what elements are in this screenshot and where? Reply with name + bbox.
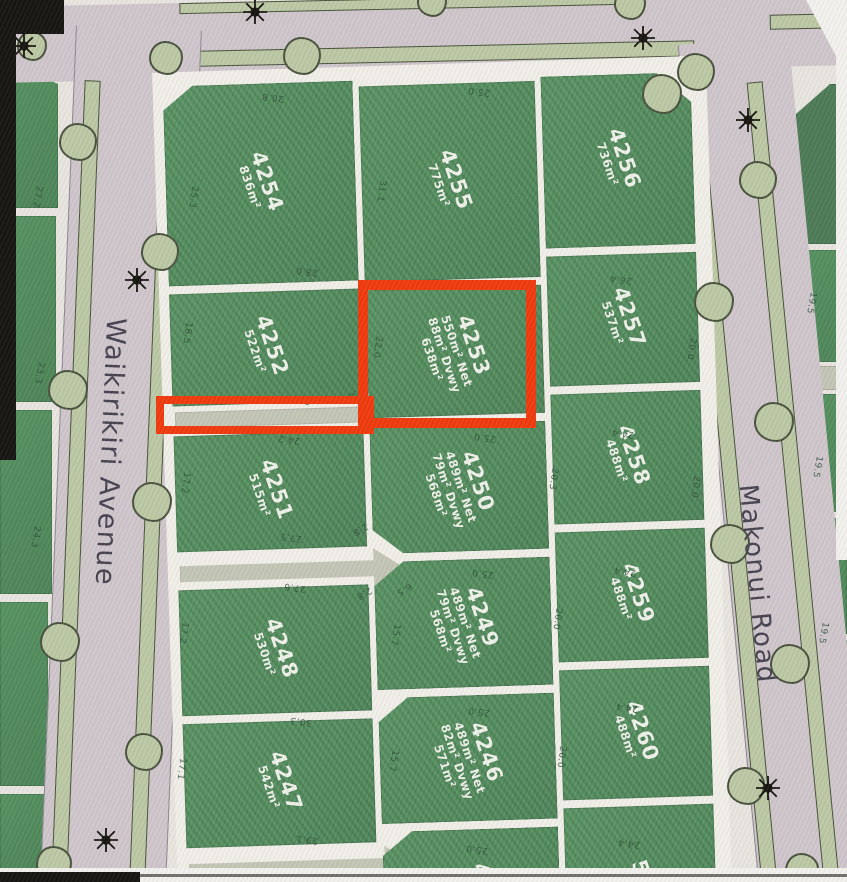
lot-4249: 4249489m² Net79m² Dvwy568m² bbox=[374, 557, 554, 690]
tree-icon bbox=[283, 37, 321, 75]
photo-edge-top-left bbox=[0, 0, 64, 34]
street-light-icon bbox=[243, 0, 267, 24]
lot-4258: 4258488m² bbox=[550, 390, 704, 525]
lot-4250: 4250489m² Net79m² Dvwy568m² bbox=[369, 421, 549, 554]
tree-icon bbox=[754, 402, 794, 442]
map-photo: 4254836m²4252522m²4251515m²4248530m²4247… bbox=[0, 0, 847, 882]
lot-4252: 4252522m² bbox=[169, 289, 362, 407]
tree-icon bbox=[642, 74, 682, 114]
lot-4247: 4247542m² bbox=[183, 718, 377, 848]
street-light-icon bbox=[94, 828, 118, 852]
tree-icon bbox=[149, 41, 183, 75]
lot-label: 4251515m² bbox=[243, 456, 297, 527]
lot-label: 4252522m² bbox=[239, 312, 293, 383]
lot-4254: 4254836m² bbox=[163, 81, 359, 287]
lot-4257: 4257537m² bbox=[546, 252, 700, 387]
tree-icon bbox=[48, 370, 88, 410]
lot-4248: 4248530m² bbox=[178, 584, 372, 716]
lot-label: 4257537m² bbox=[596, 284, 650, 355]
street-light-icon bbox=[736, 108, 760, 132]
lot-label: 4254836m² bbox=[234, 148, 288, 219]
photo-edge-left-strip bbox=[0, 30, 16, 460]
tree-icon bbox=[40, 622, 80, 662]
photo-edge-right-strip bbox=[836, 0, 847, 560]
street-light-icon bbox=[631, 26, 655, 50]
tree-icon bbox=[677, 53, 715, 91]
tree-icon bbox=[59, 123, 97, 161]
lot-label: 4255775m² bbox=[423, 146, 477, 217]
lot-4251: 4251515m² bbox=[174, 430, 368, 552]
partial-lot-west bbox=[0, 602, 48, 786]
tree-icon bbox=[141, 233, 179, 271]
tree-icon bbox=[739, 161, 777, 199]
tree-icon bbox=[694, 282, 734, 322]
lot-label: 4248530m² bbox=[248, 615, 302, 686]
lot-label: 4247542m² bbox=[253, 748, 307, 819]
lot-label: 4250489m² Net79m² Dvwy568m² bbox=[417, 440, 501, 535]
lot-label: 4256736m² bbox=[591, 125, 645, 196]
lot-4259: 4259488m² bbox=[555, 528, 709, 663]
street-light-icon bbox=[756, 776, 780, 800]
street-light-icon bbox=[125, 268, 149, 292]
lot-block: 4254836m²4252522m²4251515m²4248530m²4247… bbox=[158, 44, 724, 882]
photo-edge-bottom-left bbox=[0, 872, 140, 882]
tree-icon bbox=[132, 482, 172, 522]
highlight-rect-lot-4253-driveway bbox=[156, 396, 374, 434]
tree-icon bbox=[125, 733, 163, 771]
lot-label: 4249489m² Net79m² Dvwy568m² bbox=[422, 576, 506, 671]
lot-4260: 4260488m² bbox=[559, 666, 713, 801]
highlight-rect-lot-4253 bbox=[358, 280, 536, 428]
lot-label: 4246489m² Net82m² Dvwy571m² bbox=[426, 711, 510, 806]
